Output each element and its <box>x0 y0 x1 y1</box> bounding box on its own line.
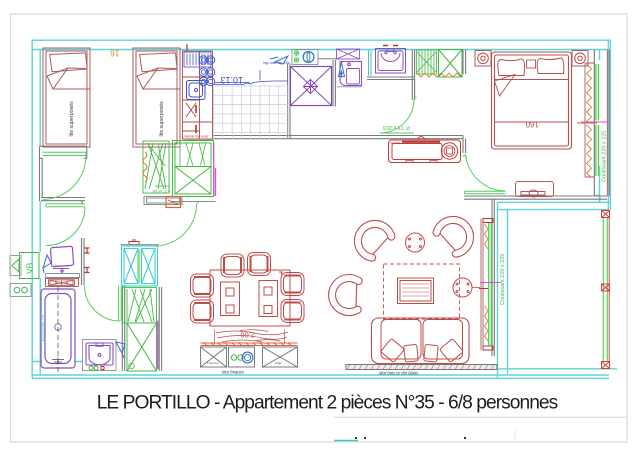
svg-text:frigo table top 140L: frigo table top 140L <box>263 61 291 65</box>
svg-text:16: 16 <box>110 49 120 59</box>
svg-text:10.13: 10.13 <box>220 75 243 85</box>
svg-text:Coulissant 220 x 225: Coulissant 220 x 225 <box>500 254 506 305</box>
svg-text:Frigo: Frigo <box>275 361 282 365</box>
svg-text:Mur bois et clin blanc: Mur bois et clin blanc <box>379 370 419 375</box>
svg-text:Coulissant 220 x 225: Coulissant 220 x 225 <box>602 131 608 182</box>
svg-text:Mur briques: Mur briques <box>222 370 245 375</box>
svg-text:Chambre: Chambre <box>155 184 170 188</box>
svg-text:lits superposés: lits superposés <box>159 101 165 137</box>
svg-text:VB: VB <box>25 262 35 274</box>
svg-text:2.00: 2.00 <box>240 331 255 340</box>
svg-text:lits superposés: lits superposés <box>69 101 75 137</box>
svg-text:LE PORTILLO - Appartement 2 pi: LE PORTILLO - Appartement 2 pièces N°35 … <box>97 392 558 413</box>
svg-text:6.27 m² lits: 6.27 m² lits <box>152 189 170 193</box>
svg-text:BAIGNOIRE 170: BAIGNOIRE 170 <box>42 315 46 341</box>
svg-text:160: 160 <box>525 120 539 129</box>
svg-text:P. 73 x 203: P. 73 x 203 <box>383 124 410 130</box>
svg-text:FrigoTop: FrigoTop <box>207 361 219 365</box>
svg-text:meuble bas evier: meuble bas evier <box>184 135 209 139</box>
